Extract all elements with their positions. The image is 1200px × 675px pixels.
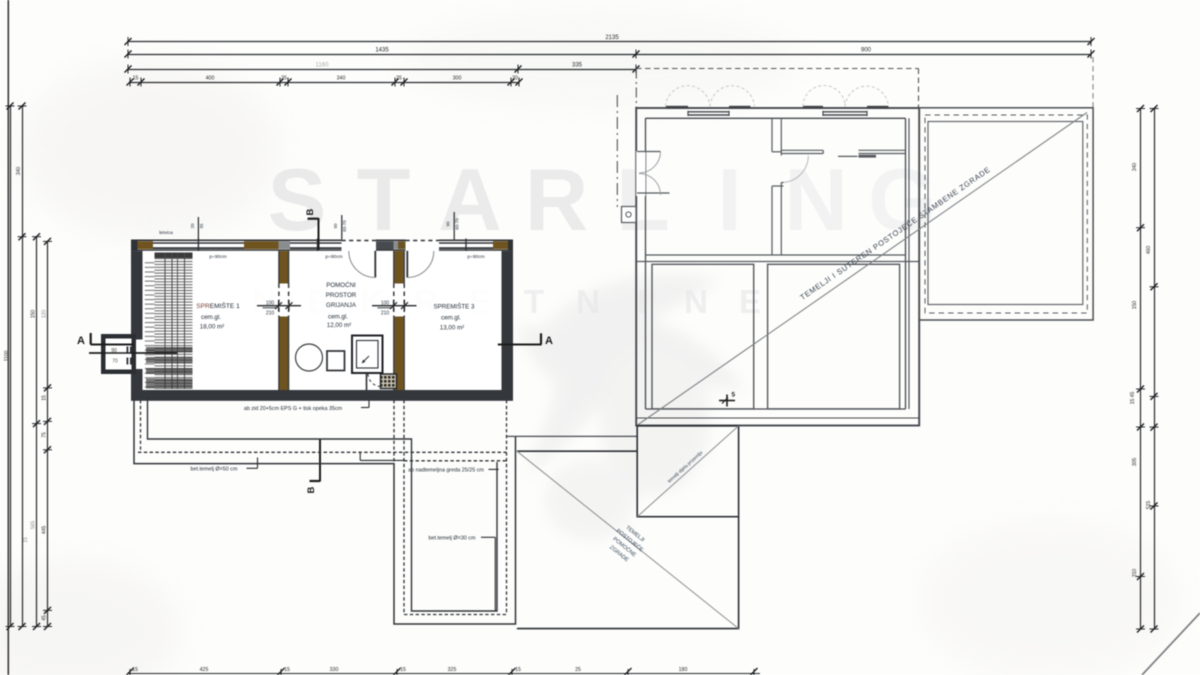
svg-text:150: 150 (1132, 301, 1138, 310)
svg-text:300: 300 (453, 76, 462, 82)
svg-text:15 45: 15 45 (1130, 392, 1136, 405)
svg-text:A: A (438, 150, 502, 249)
svg-text:425: 425 (200, 667, 209, 673)
svg-text:15: 15 (133, 76, 139, 82)
svg-text:95: 95 (199, 223, 204, 229)
svg-text:T: T (357, 150, 411, 249)
svg-text:I: I (717, 150, 741, 249)
svg-text:45: 45 (42, 615, 48, 621)
svg-text:12,00 m²: 12,00 m² (327, 322, 351, 329)
svg-text:G: G (868, 150, 936, 249)
svg-text:25: 25 (575, 667, 581, 673)
svg-text:1160: 1160 (316, 63, 330, 69)
svg-text:cem.gl.: cem.gl. (201, 314, 221, 321)
svg-text:325: 325 (448, 667, 457, 673)
svg-text:cem.gl.: cem.gl. (441, 315, 461, 322)
svg-text:15: 15 (284, 667, 290, 673)
svg-text:p=90cm: p=90cm (467, 254, 484, 260)
svg-text:13,00 m²: 13,00 m² (440, 325, 464, 332)
svg-text:210: 210 (266, 311, 275, 317)
svg-text:ab zid 20+5cm EPS G + tisk ope: ab zid 20+5cm EPS G + tisk opeka 35cm (244, 406, 343, 412)
svg-text:25: 25 (396, 76, 402, 82)
svg-text:100: 100 (266, 301, 275, 307)
svg-text:565: 565 (31, 521, 37, 530)
svg-text:100: 100 (381, 301, 390, 307)
svg-text:B: B (306, 486, 317, 493)
svg-text:400: 400 (206, 76, 215, 82)
svg-text:305: 305 (1132, 458, 1138, 467)
svg-text:25: 25 (281, 76, 287, 82)
svg-text:15: 15 (515, 667, 521, 673)
svg-text:PROSTOR: PROSTOR (326, 292, 357, 299)
svg-text:A: A (77, 335, 85, 347)
svg-text:310: 310 (1132, 569, 1138, 578)
svg-text:445: 445 (42, 526, 48, 535)
svg-text:335: 335 (572, 63, 583, 69)
svg-text:70: 70 (112, 359, 118, 365)
svg-text:340: 340 (337, 76, 346, 82)
svg-text:90: 90 (333, 223, 338, 229)
svg-text:75: 75 (42, 432, 48, 438)
svg-text:150: 150 (31, 310, 37, 319)
svg-text:1100: 1100 (4, 350, 10, 361)
svg-text:bet.temelj Ø=50 cm: bet.temelj Ø=50 cm (191, 467, 238, 473)
svg-text:SPREMIŠTE 3: SPREMIŠTE 3 (434, 304, 475, 311)
svg-text:15: 15 (132, 667, 138, 673)
svg-text:460: 460 (1146, 246, 1152, 255)
svg-text:340: 340 (16, 167, 22, 176)
svg-text:letvica: letvica (159, 230, 173, 236)
svg-text:N: N (784, 150, 848, 249)
svg-text:180: 180 (679, 667, 688, 673)
svg-text:ab nadtemeljna greda 25/25 cm: ab nadtemeljna greda 25/25 cm (408, 468, 484, 474)
svg-text:E: E (739, 283, 761, 320)
svg-text:90: 90 (446, 221, 451, 227)
svg-text:15: 15 (42, 395, 48, 401)
svg-text:R: R (525, 150, 589, 249)
svg-text:20: 20 (512, 76, 518, 82)
svg-text:18,00 m²: 18,00 m² (200, 324, 224, 331)
svg-text:15: 15 (23, 537, 29, 543)
svg-text:900: 900 (861, 48, 872, 54)
svg-text:340: 340 (1132, 163, 1138, 172)
svg-text:A: A (545, 335, 553, 347)
svg-text:T: T (524, 283, 544, 320)
svg-text:cem.gl.: cem.gl. (328, 314, 348, 321)
svg-text:60-70: 60-70 (342, 220, 347, 232)
svg-text:2135: 2135 (605, 35, 619, 41)
svg-text:1435: 1435 (375, 48, 389, 54)
svg-text:330: 330 (330, 667, 339, 673)
svg-text:5: 5 (732, 392, 736, 399)
svg-text:20: 20 (190, 223, 195, 229)
svg-text:B: B (305, 208, 316, 215)
svg-text:POMOĆNI: POMOĆNI (326, 282, 356, 289)
svg-text:60-70: 60-70 (455, 218, 460, 230)
svg-text:15: 15 (400, 667, 406, 673)
svg-text:GRIJANJA: GRIJANJA (326, 302, 357, 309)
svg-text:p=90cm: p=90cm (209, 254, 226, 260)
svg-text:210: 210 (381, 311, 390, 317)
svg-text:120: 120 (42, 310, 48, 319)
svg-text:515: 515 (1146, 501, 1152, 510)
svg-text:p=90cm: p=90cm (325, 254, 342, 260)
svg-text:SPREMIŠTE 1: SPREMIŠTE 1 (196, 301, 240, 310)
svg-text:bet.temelj Ø=30 cm: bet.temelj Ø=30 cm (429, 536, 476, 542)
